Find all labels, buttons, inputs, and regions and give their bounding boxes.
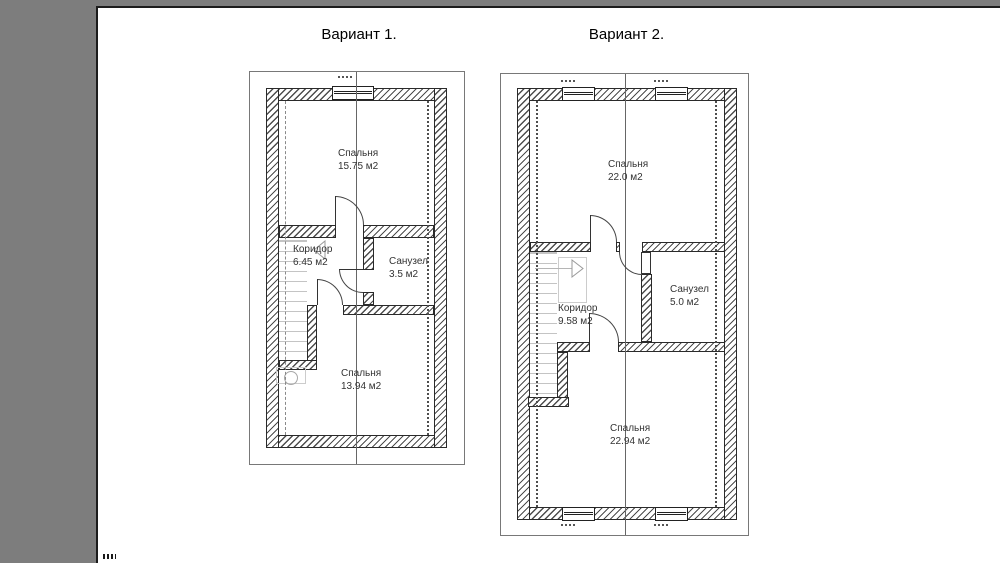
variant-2-title: Вариант 2.: [502, 26, 751, 44]
door-swing-arc: [590, 215, 617, 242]
room-area: 9.58 м2: [558, 315, 598, 328]
column-marker-icon: [284, 371, 298, 385]
room-area: 22.94 м2: [610, 435, 650, 448]
door-opening: [619, 242, 643, 252]
window-symbol: [655, 507, 688, 521]
room-name: Коридор: [293, 243, 333, 256]
room-name: Коридор: [558, 302, 598, 315]
attic-slope-line: [536, 101, 538, 507]
room-area: 3.5 м2: [389, 268, 428, 281]
axis-line: [625, 74, 626, 535]
room-area: 13.94 м2: [341, 380, 381, 393]
wall-segment: [266, 88, 279, 448]
dimension-mark: [654, 524, 668, 526]
floor-plan-variant-2: Спальня 22.0 м2 Санузел 5.0 м2 Коридор 9…: [500, 73, 749, 536]
wall-segment: [724, 88, 737, 520]
door-swing-arc: [339, 269, 363, 293]
wall-segment: [517, 88, 737, 101]
room-label-corridor: Коридор 9.58 м2: [558, 302, 598, 328]
room-name: Спальня: [341, 367, 381, 380]
room-area: 6.45 м2: [293, 256, 333, 269]
axis-line: [356, 72, 357, 464]
room-label-bedroom-1: Спальня 15.75 м2: [338, 147, 378, 173]
door-leaf: [335, 196, 336, 225]
room-label-corridor: Коридор 6.45 м2: [293, 243, 333, 269]
door-opening: [363, 269, 374, 293]
stair-arrow-shaft: [535, 268, 572, 269]
stair-direction-arrow-icon: [571, 259, 585, 278]
door-leaf: [339, 269, 363, 270]
attic-slope-line: [715, 101, 717, 507]
room-name: Спальня: [338, 147, 378, 160]
wall-segment: [557, 342, 725, 352]
door-leaf: [590, 215, 591, 242]
dimension-mark: [654, 80, 668, 82]
staircase: [530, 252, 557, 398]
room-label-bedroom-1: Спальня 22.0 м2: [608, 158, 648, 184]
door-swing-arc: [335, 196, 364, 225]
dimension-mark: [561, 524, 575, 526]
door-leaf: [641, 252, 651, 274]
room-name: Спальня: [610, 422, 650, 435]
wall-segment: [557, 352, 568, 400]
wall-segment: [641, 274, 652, 342]
room-name: Санузел: [389, 255, 428, 268]
wall-segment: [528, 397, 569, 407]
attic-slope-line: [285, 101, 286, 435]
window-symbol: [332, 86, 374, 100]
dimension-mark: [561, 80, 575, 82]
floor-plan-variant-1: Спальня 15.75 м2 Коридор 6.45 м2 Санузел…: [249, 71, 465, 465]
room-area: 22.0 м2: [608, 171, 648, 184]
room-name: Санузел: [670, 283, 709, 296]
room-label-bathroom: Санузел 3.5 м2: [389, 255, 428, 281]
bottom-page-mark: [103, 554, 116, 559]
variant-1-title: Вариант 1.: [251, 26, 467, 44]
door-opening: [335, 225, 364, 238]
door-opening: [590, 242, 617, 252]
window-symbol: [562, 87, 595, 101]
dimension-mark: [338, 76, 352, 78]
room-label-bathroom: Санузел 5.0 м2: [670, 283, 709, 309]
window-symbol: [655, 87, 688, 101]
room-name: Спальня: [608, 158, 648, 171]
wall-segment: [517, 507, 737, 520]
door-opening: [589, 342, 619, 352]
door-swing-arc: [619, 252, 642, 275]
room-area: 5.0 м2: [670, 296, 709, 309]
room-label-bedroom-2: Спальня 22.94 м2: [610, 422, 650, 448]
wall-segment: [434, 88, 447, 448]
room-label-bedroom-2: Спальня 13.94 м2: [341, 367, 381, 393]
door-swing-arc: [317, 279, 343, 305]
window-symbol: [562, 507, 595, 521]
door-leaf: [317, 279, 318, 305]
room-area: 15.75 м2: [338, 160, 378, 173]
wall-segment: [517, 88, 530, 520]
